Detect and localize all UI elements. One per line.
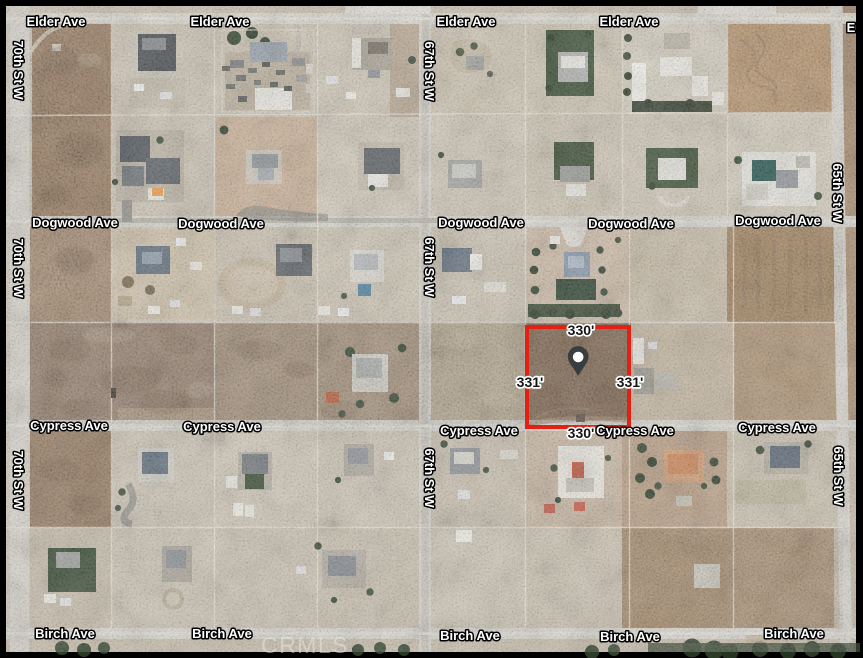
svg-text:67th St W: 67th St W (422, 41, 437, 101)
svg-text:Birch Ave: Birch Ave (764, 626, 824, 641)
svg-text:65th St W: 65th St W (830, 163, 845, 223)
svg-text:Birch Ave: Birch Ave (600, 629, 660, 644)
svg-text:Cypress Ave: Cypress Ave (440, 423, 518, 438)
svg-text:330': 330' (568, 425, 595, 441)
svg-text:Dogwood Ave: Dogwood Ave (735, 213, 821, 228)
svg-text:67th St W: 67th St W (422, 237, 437, 297)
svg-text:70th St W: 70th St W (11, 450, 26, 510)
svg-text:Cypress Ave: Cypress Ave (183, 419, 261, 434)
svg-text:70th St W: 70th St W (11, 238, 26, 298)
svg-text:70th St W: 70th St W (11, 40, 26, 100)
svg-text:331': 331' (617, 374, 644, 390)
svg-text:Birch Ave: Birch Ave (440, 628, 500, 643)
svg-text:Dogwood Ave: Dogwood Ave (588, 216, 674, 231)
svg-text:CRMLS: CRMLS (261, 632, 349, 658)
svg-text:Elder Ave: Elder Ave (26, 14, 85, 29)
svg-text:Dogwood Ave: Dogwood Ave (438, 215, 524, 230)
svg-text:Birch Ave: Birch Ave (35, 626, 95, 641)
svg-text:Cypress Ave: Cypress Ave (596, 423, 674, 438)
svg-text:Elder Ave: Elder Ave (190, 14, 249, 29)
svg-text:Cypress Ave: Cypress Ave (738, 420, 816, 435)
svg-text:67th St W: 67th St W (422, 448, 437, 508)
svg-text:Dogwood Ave: Dogwood Ave (32, 215, 118, 230)
svg-text:Cypress Ave: Cypress Ave (30, 418, 108, 433)
svg-text:E: E (847, 20, 856, 35)
svg-text:65th St W: 65th St W (831, 446, 846, 506)
svg-text:Elder Ave: Elder Ave (436, 14, 495, 29)
svg-text:Birch Ave: Birch Ave (192, 626, 252, 641)
svg-text:331': 331' (517, 374, 544, 390)
svg-text:Dogwood Ave: Dogwood Ave (178, 216, 264, 231)
svg-text:Elder Ave: Elder Ave (599, 14, 658, 29)
svg-text:330': 330' (568, 322, 595, 338)
